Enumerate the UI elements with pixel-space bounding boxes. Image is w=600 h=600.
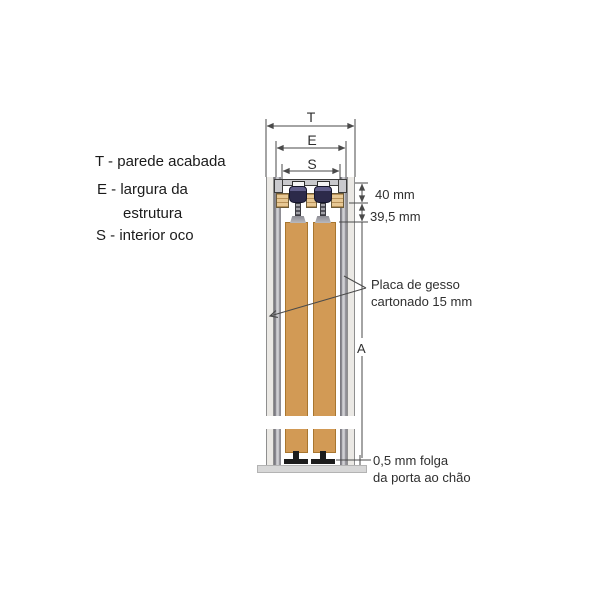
pocket-door-section-diagram: T - parede acabada E - largura da estrut… [0, 0, 600, 600]
label-track-height: 40 mm [375, 186, 415, 203]
label-total-width: T [307, 109, 316, 125]
plasterboard-leader-short [344, 276, 366, 288]
plasterboard-leader-long [270, 288, 366, 316]
label-structure-width: E [307, 132, 316, 148]
callout-floor-gap-2: da porta ao chão [373, 469, 471, 486]
dimension-lines-layer [0, 0, 600, 600]
label-clearance: 39,5 mm [370, 208, 421, 225]
callout-plasterboard-2: cartonado 15 mm [371, 293, 472, 310]
callout-plasterboard-1: Placa de gesso [371, 276, 460, 293]
callout-floor-gap-1: 0,5 mm folga [373, 452, 448, 469]
label-wall-height: A [357, 340, 366, 357]
label-hollow-interior: S [307, 156, 316, 172]
